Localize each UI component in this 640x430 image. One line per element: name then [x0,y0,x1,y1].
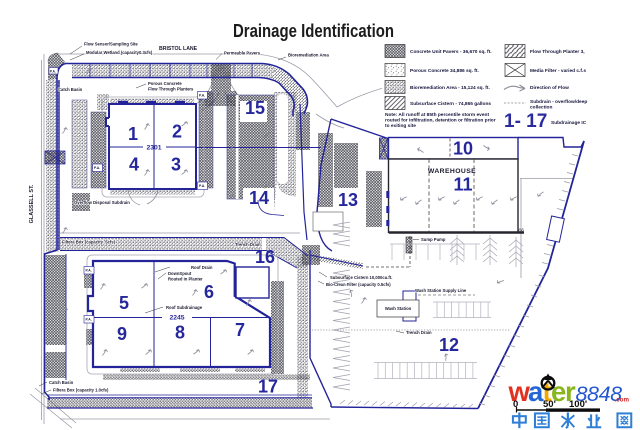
svg-text:Wash Station: Wash Station [385,306,412,311]
svg-text:Filtera Box (capacity 1.0cfs): Filtera Box (capacity 1.0cfs) [53,388,109,393]
svg-text:15: 15 [245,98,265,118]
svg-text:2: 2 [172,122,182,142]
svg-text:Subsurface Cistern 10,000cu.ft: Subsurface Cistern 10,000cu.ft. [330,275,392,280]
svg-text:7: 7 [235,320,245,340]
svg-text:Drainage Identification: Drainage Identification [233,21,394,41]
svg-text:4: 4 [129,155,139,175]
svg-text:Concrete Unit Pavers - 36,670: Concrete Unit Pavers - 36,670 sq. ft. [410,49,492,55]
svg-text:P.A.: P.A. [86,318,92,322]
svg-text:17: 17 [258,377,278,397]
svg-text:1- 17: 1- 17 [504,111,547,132]
svg-text:P.A.: P.A. [94,166,100,170]
svg-text:12: 12 [439,335,459,355]
svg-text:Filtera Box (capacity .5cfs): Filtera Box (capacity .5cfs) [62,240,116,245]
svg-text:Flow Through Planters: Flow Through Planters [148,87,194,92]
svg-text:.com: .com [615,397,630,404]
svg-text:P.A.: P.A. [50,70,56,74]
svg-text:Overflow Disposal Subdrain: Overflow Disposal Subdrain [74,200,130,205]
svg-text:Bioremediation Area - 15,124 s: Bioremediation Area - 15,124 sq. ft. [410,85,490,91]
svg-text:P.A.: P.A. [199,184,205,188]
svg-text:Modular Wetland (capacity0.3cf: Modular Wetland (capacity0.3cfs) [86,50,153,55]
svg-text:P.A.: P.A. [199,94,205,98]
svg-text:Permeable Pavers: Permeable Pavers [224,51,261,56]
svg-text:10: 10 [453,139,473,159]
svg-text:DownSpout: DownSpout [168,271,192,276]
svg-text:Flow Through Planter 3,: Flow Through Planter 3, [530,49,585,55]
svg-text:2301: 2301 [146,145,161,152]
svg-text:Roof Drain: Roof Drain [191,265,213,270]
svg-text:Bioremediation Area: Bioremediation Area [288,53,329,58]
svg-text:Trench Drain: Trench Drain [406,330,432,335]
svg-text:6: 6 [204,282,214,302]
svg-text:3: 3 [171,155,181,175]
svg-text:to exiting site: to exiting site [385,123,416,129]
svg-text:Catch Basin: Catch Basin [49,380,74,385]
svg-text:14: 14 [249,188,269,208]
svg-text:0: 0 [513,399,518,410]
svg-text:Media Filter - varied c.f.s: Media Filter - varied c.f.s [530,68,586,74]
svg-text:Catch Basin: Catch Basin [58,87,83,92]
svg-text:8: 8 [175,323,185,343]
svg-text:Note: All runoff at 85th perce: Note: All runoff at 85th percentile stor… [385,112,489,118]
svg-text:11: 11 [453,175,472,195]
svg-text:2245: 2245 [169,315,184,322]
svg-text:BRISTOL LANE: BRISTOL LANE [159,46,198,52]
svg-text:Porous Concrete 34,886 sq. ft.: Porous Concrete 34,886 sq. ft. [410,68,479,74]
svg-text:routed for infiltration, deten: routed for infiltration, detention or fi… [385,118,496,124]
svg-text:Subdrain - overflow/deep: Subdrain - overflow/deep [530,99,587,105]
svg-text:Porous Concrete: Porous Concrete [148,81,182,86]
svg-text:collection: collection [530,105,552,111]
svg-text:Routed in Planter: Routed in Planter [168,277,203,282]
svg-text:Flow Sensor/Sampling Site: Flow Sensor/Sampling Site [84,42,138,47]
svg-text:13: 13 [338,190,358,210]
svg-text:Sump Pump: Sump Pump [421,237,446,242]
svg-text:1: 1 [128,124,138,144]
svg-text:5: 5 [119,293,129,313]
svg-text:Roof Subdrainage: Roof Subdrainage [166,305,203,310]
svg-text:Subdrainage IC: Subdrainage IC [551,120,587,126]
svg-text:Subsurface Cistern - 74,865 ga: Subsurface Cistern - 74,865 gallons [410,101,491,107]
svg-text:P.A.: P.A. [86,269,92,273]
svg-text:GLASSELL ST.: GLASSELL ST. [29,184,35,223]
svg-text:16: 16 [255,247,275,267]
svg-text:Trench Drain: Trench Drain [235,242,261,247]
svg-text:Wash Station Supply Line: Wash Station Supply Line [415,288,467,293]
svg-text:Direction of Flow: Direction of Flow [530,85,569,91]
svg-text:9: 9 [117,324,127,344]
